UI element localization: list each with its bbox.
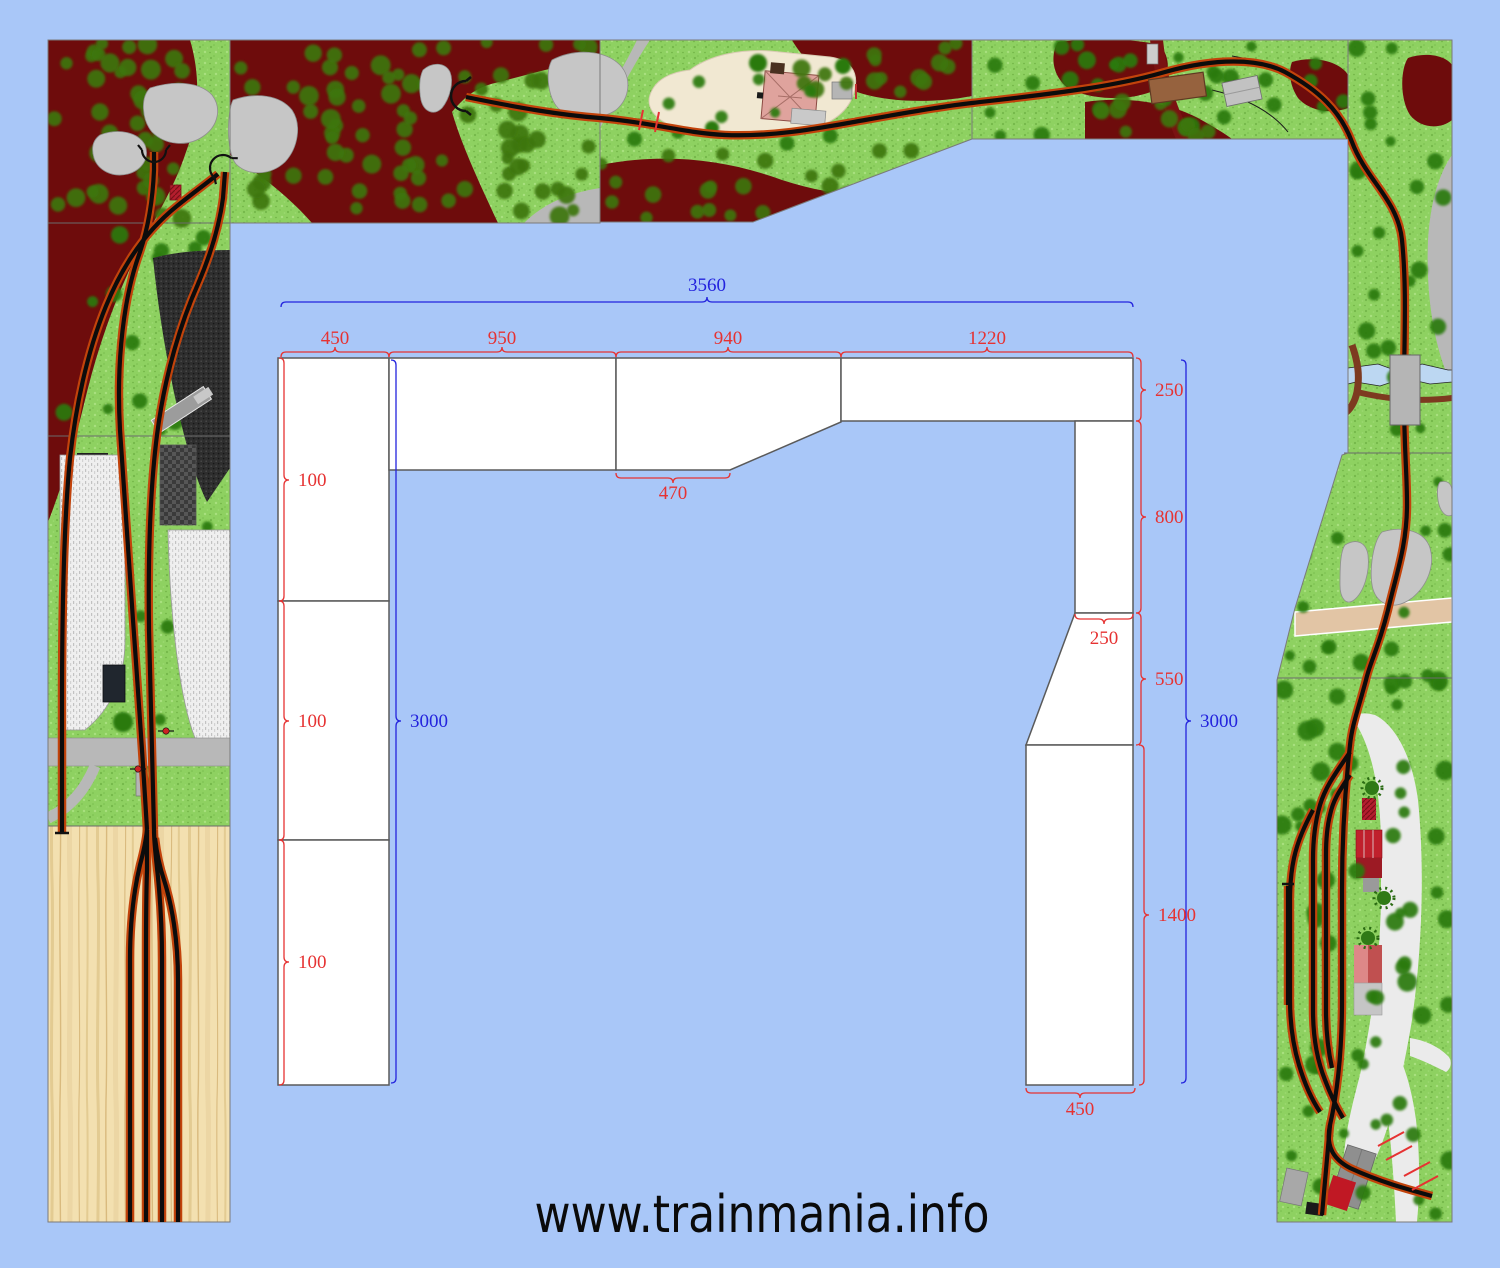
tree [141, 60, 161, 80]
tree [1368, 289, 1380, 301]
tree [321, 109, 341, 129]
tree [509, 158, 526, 175]
tree [1297, 721, 1317, 741]
dim-right-250: 250 [1155, 380, 1184, 401]
dim-right-height-3000: 3000 [1200, 711, 1238, 732]
tree [609, 176, 622, 189]
tree [1421, 669, 1434, 682]
tree [124, 335, 139, 350]
tree [938, 41, 951, 54]
tree [513, 203, 530, 220]
tree [475, 83, 488, 96]
tree [1435, 189, 1451, 205]
tree [1363, 105, 1377, 119]
tree [459, 106, 476, 123]
tree [122, 40, 136, 54]
tree [1393, 1096, 1408, 1111]
tree [1351, 167, 1362, 178]
tree [493, 67, 509, 83]
tree [299, 86, 319, 106]
tree [436, 154, 448, 166]
tree [167, 162, 180, 175]
board-left-3 [278, 840, 389, 1085]
tree [663, 98, 675, 110]
tree [700, 182, 717, 199]
building-red [1356, 830, 1382, 858]
building-small-red [1362, 798, 1376, 820]
dim-top-940: 940 [714, 328, 743, 349]
tree [1398, 674, 1413, 689]
tree [1266, 97, 1281, 112]
building-checker [160, 445, 196, 525]
tree [1303, 660, 1317, 674]
building-annex [1363, 878, 1379, 892]
tree [51, 197, 66, 212]
tree [352, 183, 368, 199]
tree [1366, 990, 1378, 1002]
tree [154, 714, 166, 726]
tree [1395, 787, 1407, 799]
tree [835, 58, 851, 74]
tree [326, 132, 339, 145]
tree [87, 186, 99, 198]
tree [693, 76, 705, 88]
bridge-gray [1390, 355, 1420, 425]
tree [234, 61, 247, 74]
tree [1246, 41, 1256, 51]
tree [1094, 104, 1110, 120]
tree [91, 103, 108, 120]
tree [1430, 319, 1446, 335]
tree [329, 89, 346, 106]
tree [404, 111, 418, 125]
tree [345, 66, 359, 80]
dim-left-height-3000: 3000 [410, 711, 448, 732]
tree [1025, 76, 1040, 91]
tree [56, 404, 73, 421]
tree [1366, 343, 1381, 358]
track-rail [146, 830, 147, 1222]
tree [894, 86, 906, 98]
tree [1384, 642, 1399, 657]
tree [805, 170, 818, 183]
tree [161, 620, 175, 634]
tree [113, 712, 133, 732]
tree [111, 226, 129, 244]
tree [119, 59, 136, 76]
tree [985, 107, 996, 118]
tree [1285, 651, 1295, 661]
dim-top-1220: 1220 [968, 328, 1006, 349]
tree [109, 197, 127, 215]
tree [1351, 1049, 1364, 1062]
tree [1371, 1119, 1382, 1130]
tree [757, 153, 773, 169]
tree [60, 57, 72, 69]
dim-top-450: 450 [321, 328, 350, 349]
tree [87, 296, 98, 307]
dim-top-950: 950 [488, 328, 517, 349]
tree [749, 54, 767, 72]
tree [1356, 1185, 1371, 1200]
tree [904, 143, 920, 159]
board-right-800 [1075, 421, 1133, 613]
board-top-1220 [841, 358, 1133, 421]
tree [1411, 262, 1428, 279]
track-plan-page: 3560 450 950 940 1220 470 250 450 250 80… [0, 0, 1500, 1268]
tree [1173, 52, 1183, 62]
tree [1396, 760, 1410, 774]
tree [103, 404, 113, 414]
tree [174, 63, 190, 79]
tree [770, 108, 780, 118]
tree [866, 72, 883, 89]
tree [1358, 322, 1375, 339]
tree [1291, 807, 1305, 821]
dim-right-1400: 1400 [1158, 905, 1196, 926]
tree [303, 104, 318, 119]
tree [247, 180, 265, 198]
tree [1431, 886, 1444, 899]
dim-left-100-2: 100 [298, 711, 327, 732]
tree [355, 128, 369, 142]
building-pink-right [1368, 945, 1382, 983]
tree [1217, 110, 1232, 125]
tree [1339, 1129, 1349, 1139]
tree [395, 139, 412, 156]
tree [1209, 68, 1224, 83]
tree [1413, 1006, 1431, 1024]
board-top-950 [389, 358, 616, 470]
tree [645, 186, 662, 203]
tree [1361, 91, 1376, 106]
tree [382, 71, 395, 84]
tree [441, 193, 456, 208]
tree [411, 170, 426, 185]
tree [1391, 699, 1402, 710]
tree [1395, 960, 1410, 975]
tree [1420, 525, 1431, 536]
tree [1331, 532, 1344, 545]
tree [436, 40, 451, 55]
tree [305, 45, 322, 62]
tree [362, 155, 381, 174]
tree [987, 57, 1002, 72]
tree [1286, 1150, 1297, 1161]
tree [662, 149, 675, 162]
tree [130, 116, 146, 132]
tree [780, 136, 795, 151]
dim-right-550: 550 [1155, 669, 1184, 690]
tree [702, 203, 716, 217]
tree [1109, 60, 1119, 70]
tree [1399, 807, 1410, 818]
tree [716, 148, 729, 161]
tree [412, 197, 428, 213]
tree [804, 85, 816, 97]
tree [691, 205, 705, 219]
tree [915, 73, 932, 90]
tree [1385, 828, 1400, 843]
tree [1385, 136, 1395, 146]
watermark: www.trainmania.info [535, 1185, 990, 1245]
tree [931, 54, 948, 71]
tree [1406, 1127, 1421, 1142]
tree [287, 80, 300, 93]
tree [1161, 110, 1178, 127]
tree [1120, 126, 1132, 138]
tree [793, 60, 811, 78]
building-dark [103, 665, 125, 702]
tree [735, 178, 752, 195]
tree [567, 204, 579, 216]
tree [872, 143, 887, 158]
tree [1352, 245, 1364, 257]
tree [318, 169, 334, 185]
module-left-strip [47, 35, 230, 1222]
tree [1309, 57, 1322, 70]
tree [352, 99, 366, 113]
tree [498, 121, 517, 140]
tree [1410, 180, 1424, 194]
tree [532, 72, 550, 90]
track-plan-image: 3560 450 950 940 1220 470 250 450 250 80… [0, 0, 1500, 1268]
tree [1349, 863, 1365, 879]
tree [496, 183, 512, 199]
tree [1078, 51, 1096, 69]
tree [715, 111, 727, 123]
dim-right-800: 800 [1155, 507, 1184, 528]
tree [582, 140, 596, 154]
dim-left-100-1: 100 [298, 470, 327, 491]
tree [753, 74, 765, 86]
tree [1428, 828, 1445, 845]
tree [1438, 523, 1453, 538]
tree [535, 183, 551, 199]
tree [1381, 1114, 1394, 1127]
tree [394, 193, 410, 209]
tree [1427, 153, 1443, 169]
tree [132, 393, 147, 408]
tree [1329, 688, 1345, 704]
tree [350, 202, 362, 214]
dim-left-100-3: 100 [298, 952, 327, 973]
board-right-1400 [1026, 745, 1133, 1085]
trackside-hut [1147, 44, 1158, 64]
tree [1114, 94, 1131, 111]
tree [100, 53, 119, 72]
tree [393, 165, 409, 181]
tree [1429, 1207, 1442, 1220]
tree [457, 181, 473, 197]
tree [831, 164, 845, 178]
tree [412, 42, 427, 57]
tree [1370, 1036, 1381, 1047]
tree [818, 67, 832, 81]
tree [1348, 39, 1366, 57]
tree [381, 84, 401, 104]
tree [1054, 39, 1070, 55]
dim-notch-470: 470 [659, 483, 688, 504]
tree [627, 132, 642, 147]
board-left-1 [278, 358, 389, 601]
tree [1297, 601, 1309, 613]
tree [605, 195, 619, 209]
tree [1279, 1067, 1293, 1081]
tree [867, 47, 882, 62]
tree [67, 188, 86, 207]
tree [528, 131, 545, 148]
tree [724, 209, 736, 221]
tree [327, 47, 342, 62]
tree [87, 70, 105, 88]
tree [1322, 640, 1336, 654]
tree [1398, 607, 1409, 618]
dim-overall-width: 3560 [688, 275, 726, 296]
tree [285, 168, 301, 184]
tree [840, 77, 853, 90]
dim-trap-250: 250 [1090, 628, 1119, 649]
tree [327, 144, 344, 161]
tree [1258, 72, 1273, 87]
tree [575, 168, 588, 181]
tree [1373, 227, 1385, 239]
tree [1386, 42, 1398, 54]
tree [244, 79, 260, 95]
tree [558, 186, 576, 204]
signal-box [170, 185, 181, 200]
tree [47, 111, 62, 126]
tree [1380, 340, 1396, 356]
tree [1123, 53, 1138, 68]
tree [1395, 908, 1406, 919]
tree [1397, 972, 1417, 992]
dim-bottom-450: 450 [1066, 1099, 1095, 1120]
board-left-2 [278, 601, 389, 840]
tree [1433, 678, 1445, 690]
